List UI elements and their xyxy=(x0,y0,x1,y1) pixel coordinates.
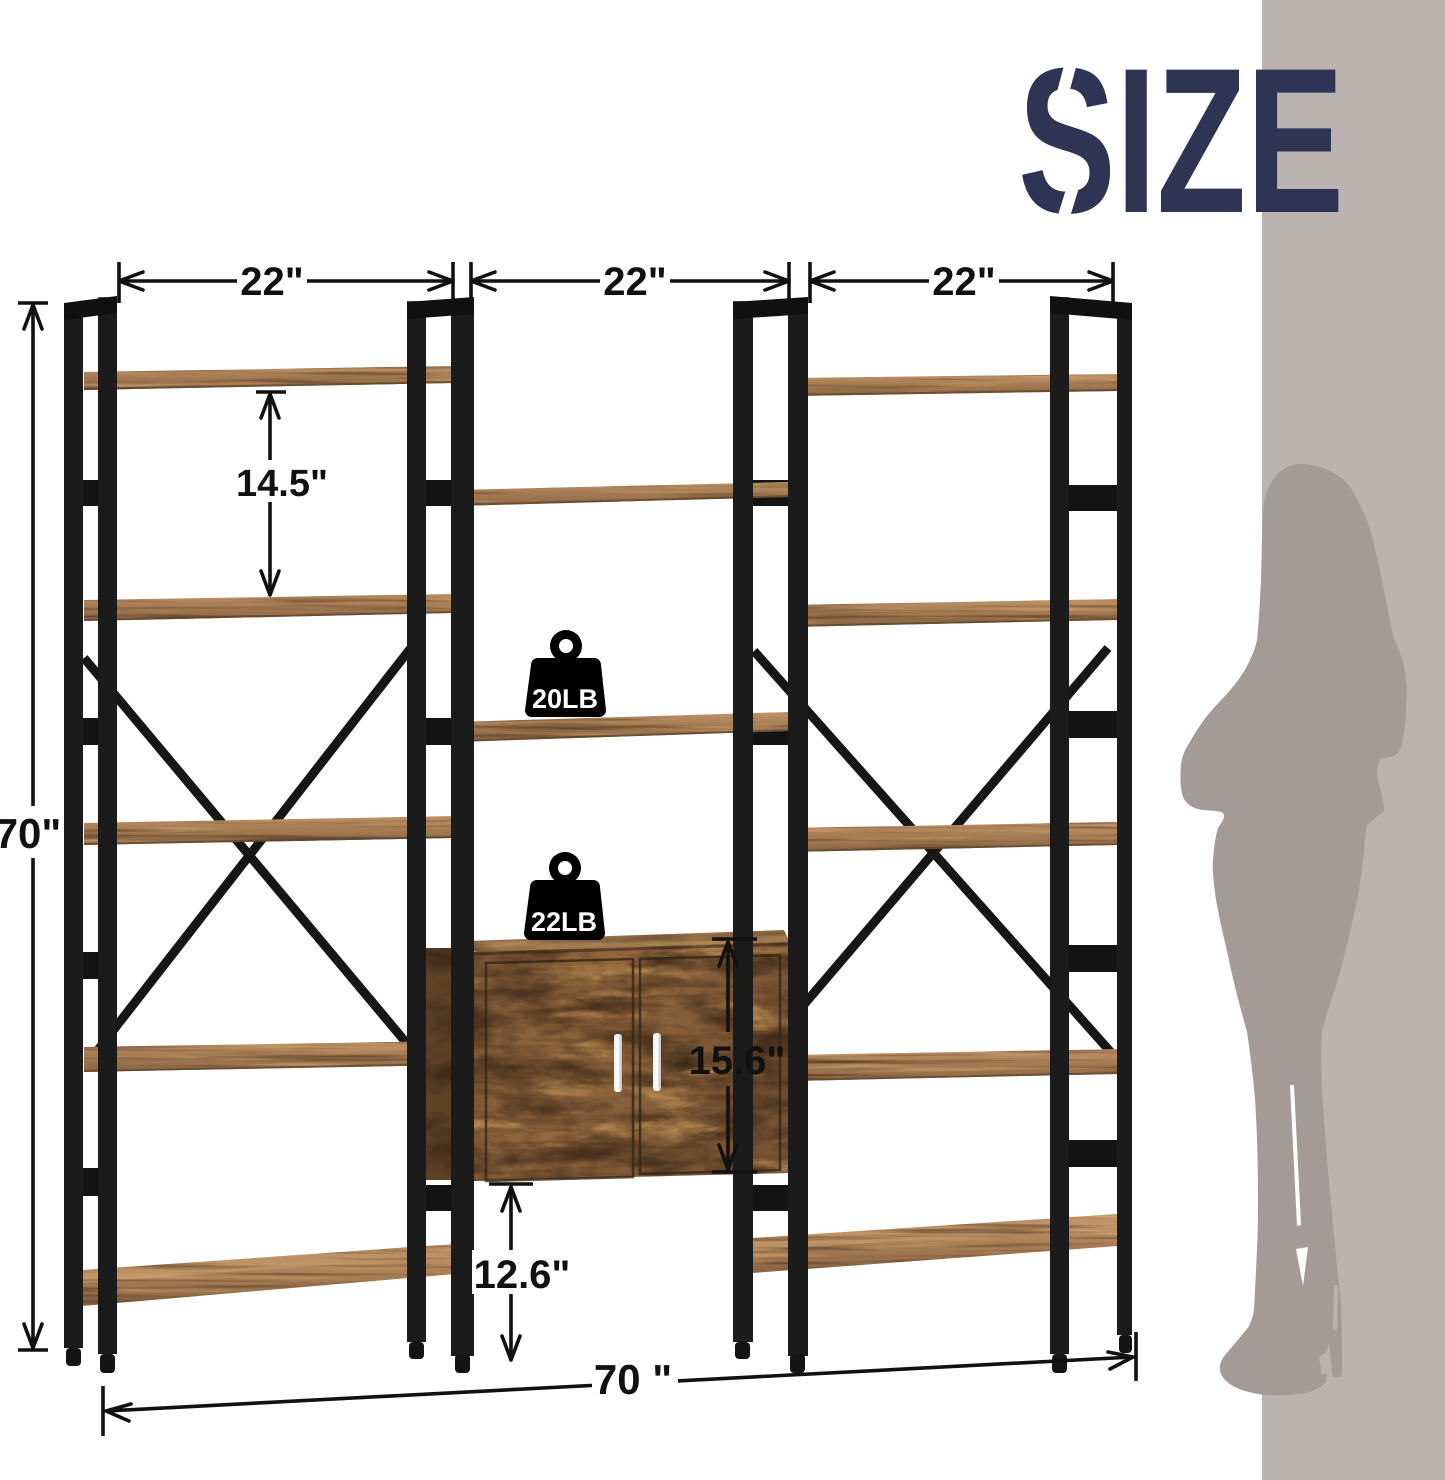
svg-text:14.5": 14.5" xyxy=(236,463,328,505)
svg-text:70 ": 70 " xyxy=(594,1356,672,1403)
svg-text:20LB: 20LB xyxy=(532,684,598,714)
svg-text:70": 70" xyxy=(0,810,61,857)
svg-text:15.6": 15.6" xyxy=(689,1039,786,1083)
svg-text:22": 22" xyxy=(240,260,303,304)
svg-text:12.6": 12.6" xyxy=(474,1253,571,1297)
svg-text:22LB: 22LB xyxy=(531,907,597,937)
svg-text:22": 22" xyxy=(932,260,995,304)
svg-text:22": 22" xyxy=(603,260,666,304)
